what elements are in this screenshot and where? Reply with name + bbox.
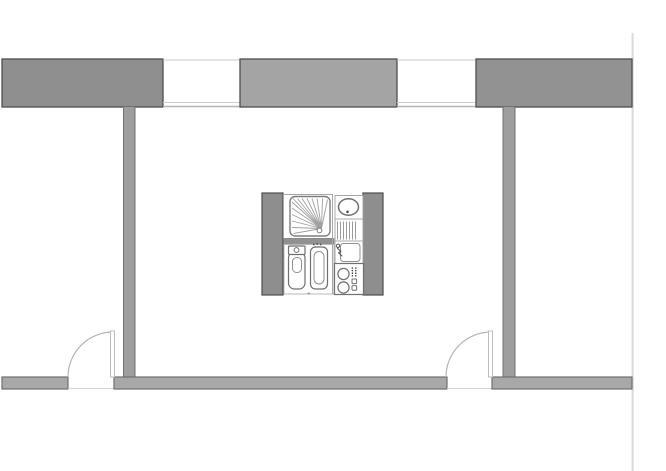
bottom-wall-left-segment: [2, 377, 68, 389]
bottom-wall-right-segment: [492, 377, 632, 389]
stove-control-switch-1: [352, 279, 357, 284]
sink-basin: [341, 244, 361, 262]
stove-burner-front: [338, 282, 349, 293]
door-1-leaf: [111, 331, 115, 377]
washbasin: [339, 199, 359, 215]
core-divider-bar: [284, 239, 335, 245]
door-1-swing-arc: [68, 332, 113, 377]
toilet-flush-button: [294, 248, 299, 253]
toilet-bowl-inner: [293, 258, 302, 273]
drainboard-compartment: [335, 219, 363, 241]
door-2-swing-arc: [446, 332, 491, 377]
top-wall-middle-segment: [240, 59, 397, 107]
top-wall-left-segment: [2, 59, 163, 107]
partition-wall-left: [124, 107, 136, 378]
bidet-basin: [314, 252, 324, 285]
floor-plan-svg: [0, 0, 666, 471]
core-wall-left: [262, 193, 283, 295]
washbasin-drain-dot: [346, 211, 349, 214]
sink-tap-dot: [336, 244, 339, 247]
partition-wall-right: [503, 107, 515, 378]
stove-control-switch-2: [352, 286, 357, 291]
bottom-wall-middle-segment: [114, 377, 447, 389]
stove-burner-rear: [338, 268, 349, 279]
top-wall-right-segment: [476, 59, 632, 107]
door-2-leaf: [489, 331, 493, 377]
drainboard-ribs: [338, 222, 356, 240]
core-wall-right: [363, 193, 383, 295]
shower-drain: [317, 228, 322, 233]
floor-plan: [0, 0, 666, 471]
